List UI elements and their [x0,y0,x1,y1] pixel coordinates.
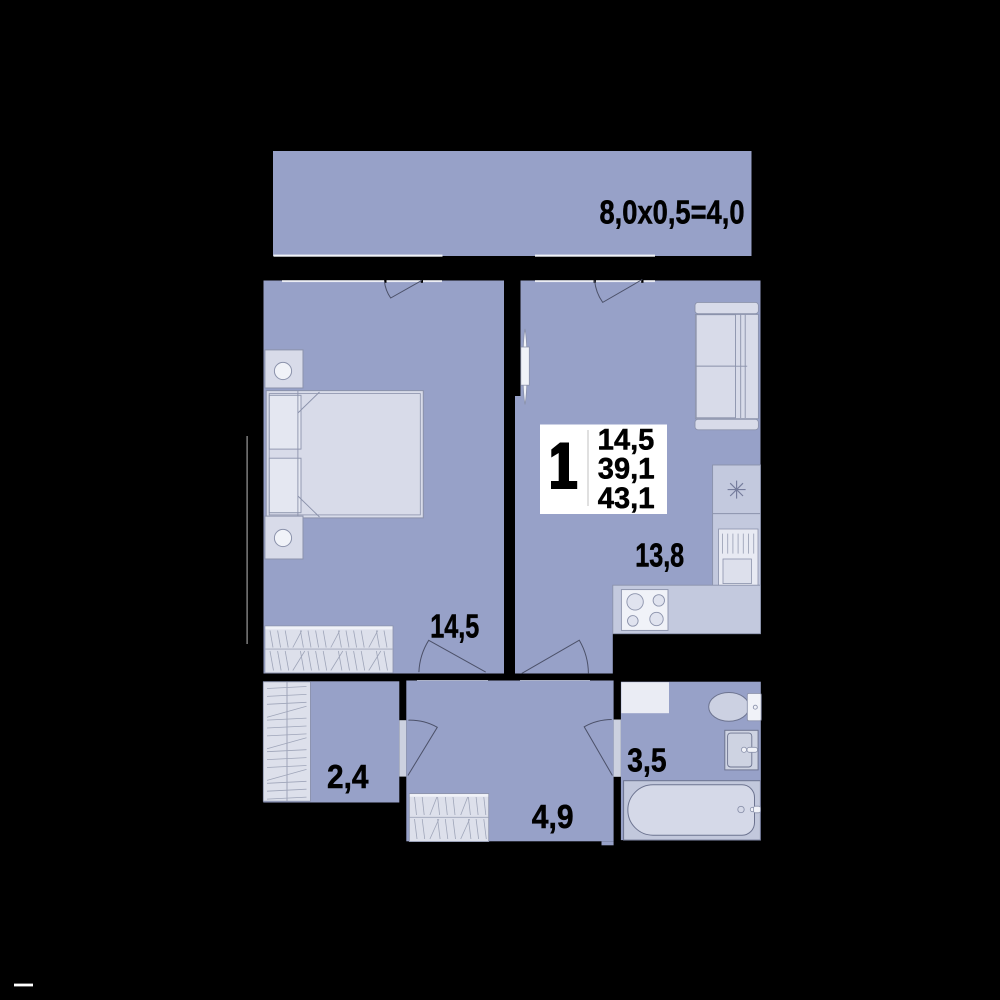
svg-text:4,9: 4,9 [532,798,574,835]
svg-text:2,4: 2,4 [327,758,369,795]
svg-text:39,1: 39,1 [598,452,655,485]
svg-text:14,5: 14,5 [430,608,479,645]
svg-text:43,1: 43,1 [598,482,655,515]
svg-text:8,0x0,5=4,0: 8,0x0,5=4,0 [600,193,745,230]
svg-text:3,5: 3,5 [627,741,666,778]
svg-text:13,8: 13,8 [635,537,684,574]
